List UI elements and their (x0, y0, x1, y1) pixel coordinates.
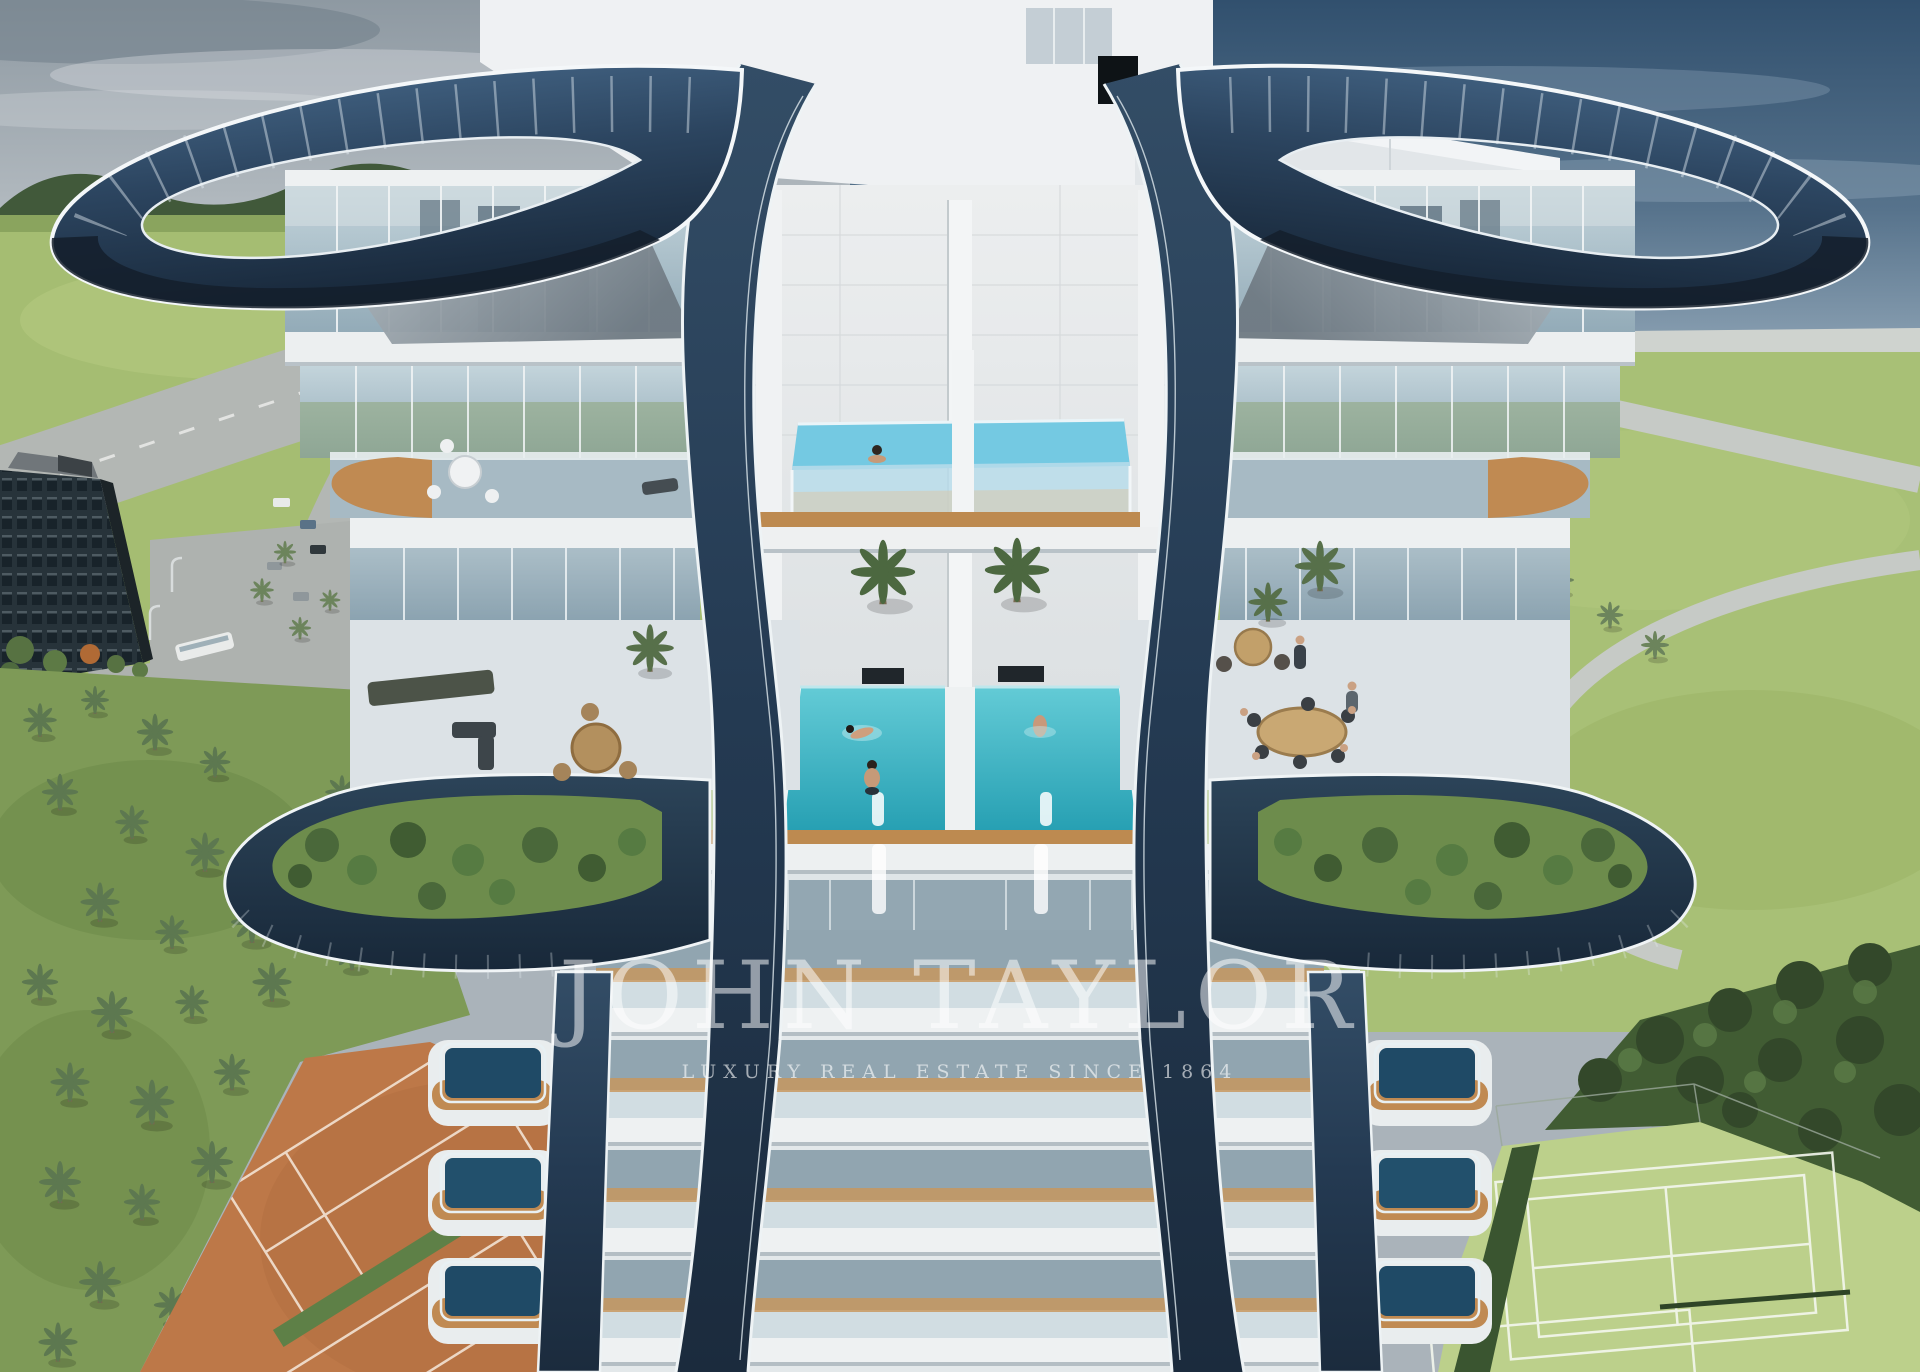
waterfall (1034, 844, 1048, 914)
swimmer (872, 445, 882, 455)
rendering-canvas (0, 0, 1920, 1372)
round-table (449, 456, 481, 488)
plunge-pool (445, 1048, 541, 1098)
wicker-table (572, 724, 620, 772)
outer-fin (538, 972, 612, 1372)
plunge-pool (445, 1266, 541, 1316)
pool-jet (872, 792, 884, 826)
dining-table (1258, 708, 1346, 756)
waterfall (872, 844, 886, 914)
lower-facade (560, 930, 1360, 1372)
terrace-pools (782, 666, 1138, 830)
plunge-pool (445, 1158, 541, 1208)
architectural-rendering: JOHN TAYLOR LUXURY REAL ESTATE SINCE 186… (0, 0, 1920, 1372)
round-table (1235, 629, 1271, 665)
upper-terrace (330, 452, 700, 548)
pool-jet (1040, 792, 1052, 826)
